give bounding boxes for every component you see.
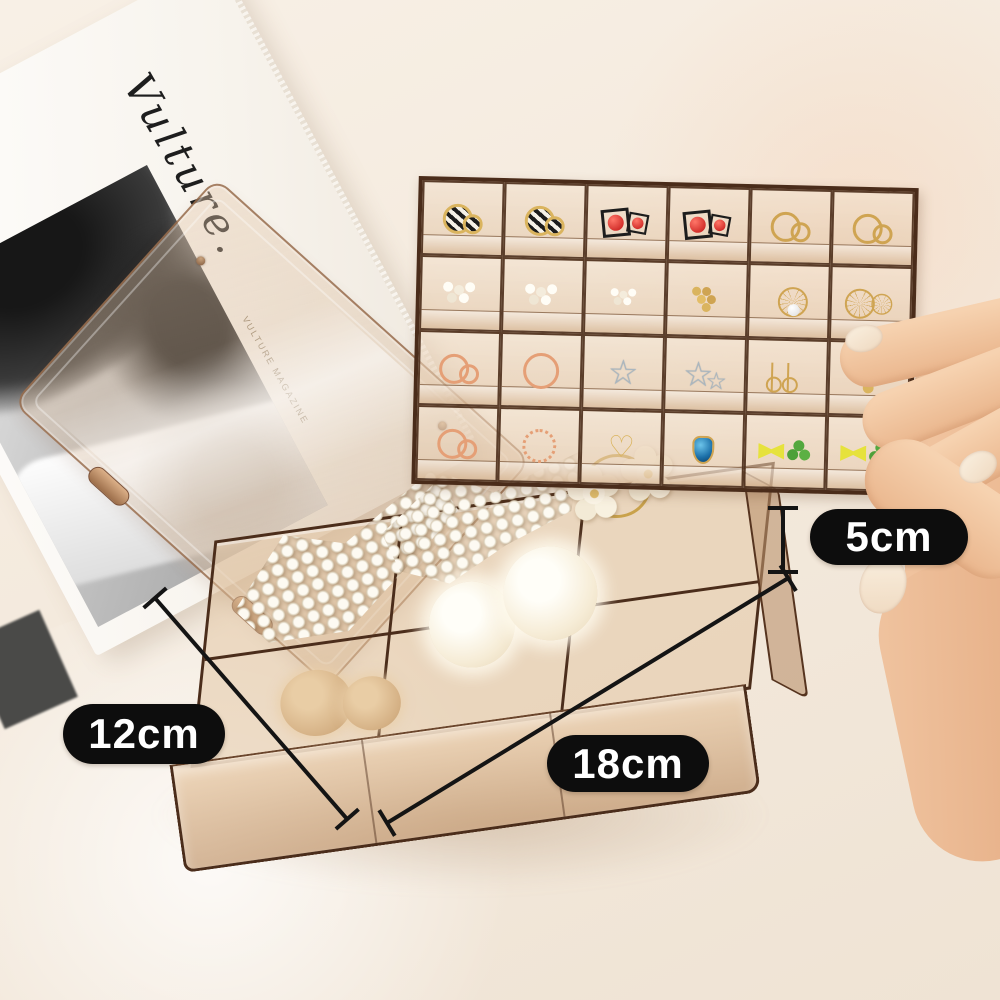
tray-cell: ☆ xyxy=(581,334,665,411)
rose-hoop-pair-icon xyxy=(437,428,478,459)
striped-hoop-icon xyxy=(442,203,483,234)
tray-grid: ☆☆☆♡ xyxy=(415,180,914,492)
red-square-icon xyxy=(601,208,652,237)
tray-cell xyxy=(665,261,749,338)
photo-dark-corner xyxy=(0,610,78,729)
dimension-label-width: 12cm xyxy=(63,704,225,764)
tray-cell xyxy=(499,332,583,409)
dimension-label-length: 18cm xyxy=(547,735,709,792)
dimension-cap xyxy=(768,570,798,574)
dimension-line xyxy=(781,508,785,572)
tray-cell xyxy=(831,190,915,267)
tray-cell xyxy=(419,255,503,332)
tray-cell xyxy=(585,184,669,261)
product-photo: Vulture. VULTURE MAGAZINE xyxy=(0,0,1000,1000)
tray-cell xyxy=(667,186,751,263)
pearl-stud-icon xyxy=(607,285,644,310)
tray-cell xyxy=(501,257,585,334)
tray-cell xyxy=(747,263,831,340)
tray-cell xyxy=(745,338,829,415)
lid-screw xyxy=(194,254,207,267)
tray-cell xyxy=(743,413,827,490)
tray-cell xyxy=(415,405,499,482)
twist-hoop-icon xyxy=(522,428,557,463)
rose-hoop-icon xyxy=(523,352,560,389)
pearl-cluster-icon xyxy=(443,281,480,306)
gold-hoop-icon xyxy=(852,213,893,244)
tray-cell xyxy=(497,407,581,484)
tray-cell: ☆☆ xyxy=(663,336,747,413)
wire-ball-pearl-icon xyxy=(778,286,801,317)
dimension-cap xyxy=(768,506,798,510)
pearl-cluster-icon xyxy=(525,283,562,308)
red-square-icon xyxy=(683,210,734,239)
box-front-seam xyxy=(361,740,377,843)
gold-knot-icon xyxy=(692,286,723,313)
tray-cell xyxy=(417,330,501,407)
gold-dangle-icon xyxy=(771,362,804,391)
dimension-label-height: 5cm xyxy=(810,509,968,565)
rose-hoop-pair-icon xyxy=(439,353,480,384)
tray-cell xyxy=(583,259,667,336)
striped-hoop-icon xyxy=(524,205,565,236)
tray-cell xyxy=(661,411,745,488)
tray-cell: ♡ xyxy=(579,409,663,486)
silver-star-pair-icon: ☆☆ xyxy=(683,356,728,393)
earring-tray: ☆☆☆♡ xyxy=(411,176,918,496)
tray-cell xyxy=(421,180,505,257)
heart-hoop-icon: ♡ xyxy=(607,432,635,463)
clover-bow-icon xyxy=(758,439,813,464)
blue-gem-icon xyxy=(692,435,715,464)
dimension-line-height xyxy=(781,508,785,572)
wire-ball-icon xyxy=(844,288,897,319)
tray-cell xyxy=(503,182,587,259)
gold-hoop-icon xyxy=(770,211,811,242)
silver-star-icon: ☆ xyxy=(607,355,638,390)
tray-cell xyxy=(749,188,833,265)
